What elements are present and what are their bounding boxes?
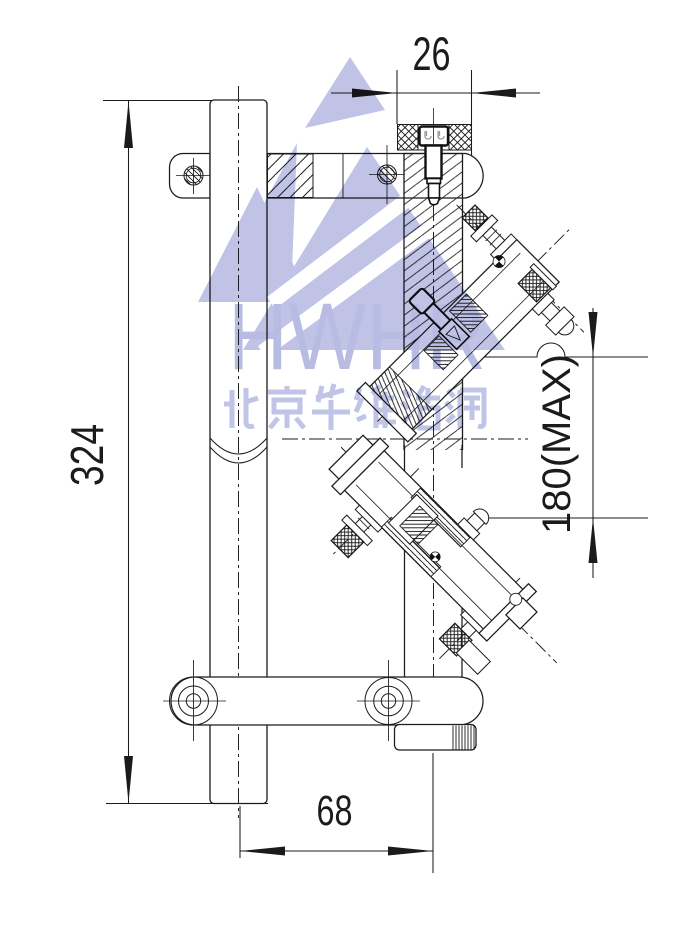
svg-text:180(MAX): 180(MAX) xyxy=(535,354,579,534)
svg-text:68: 68 xyxy=(317,787,353,835)
svg-text:324: 324 xyxy=(61,424,113,486)
svg-text:HWHR: HWHR xyxy=(228,284,486,390)
svg-text:26: 26 xyxy=(413,27,451,80)
